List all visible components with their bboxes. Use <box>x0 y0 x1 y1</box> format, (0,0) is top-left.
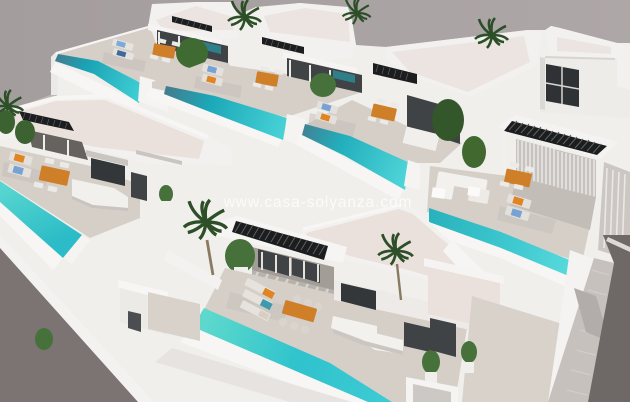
svg-text:www.casa-solyanza.com: www.casa-solyanza.com <box>223 194 413 211</box>
